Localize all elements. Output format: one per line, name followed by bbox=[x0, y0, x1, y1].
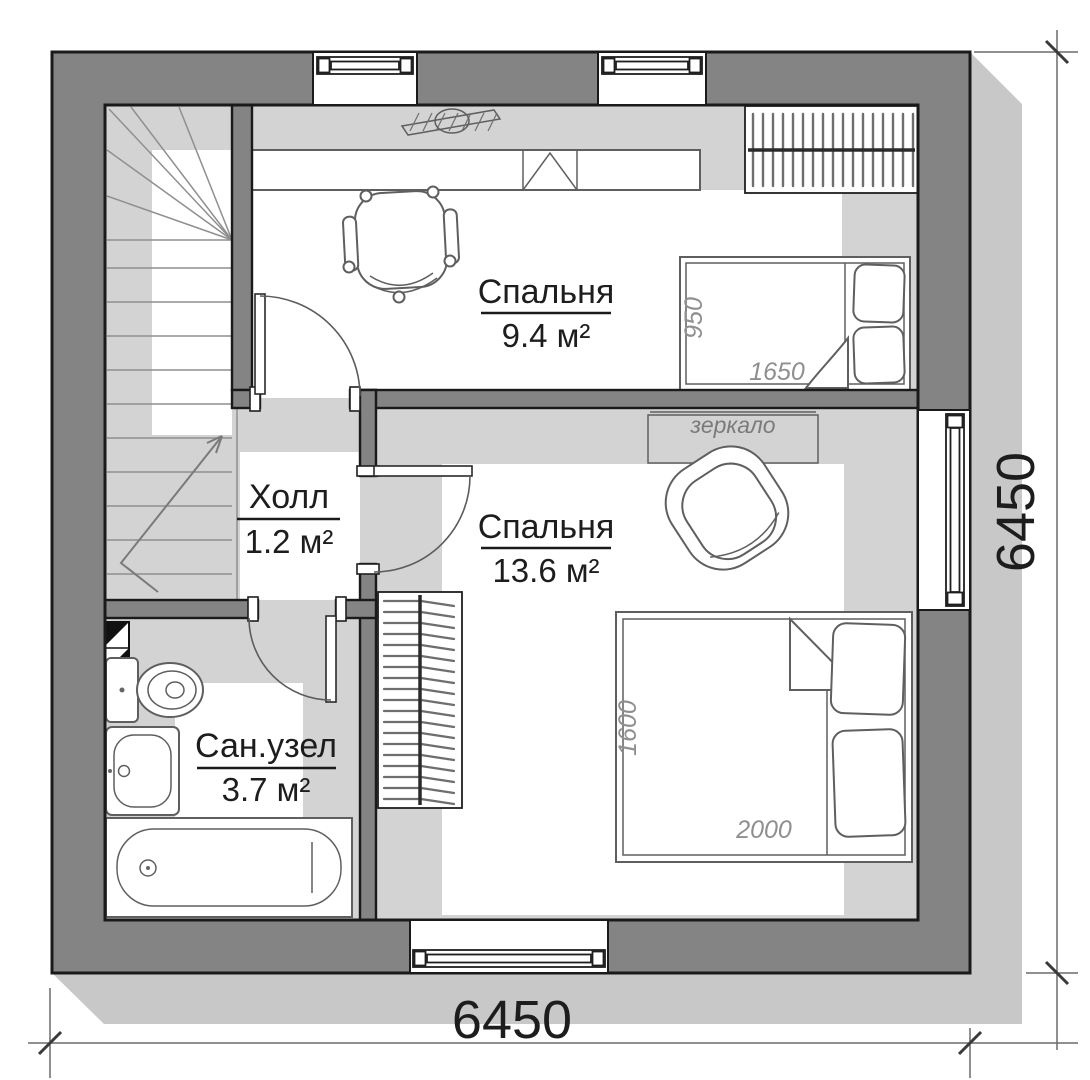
door-leaf bbox=[374, 466, 472, 476]
window-cap bbox=[319, 59, 330, 73]
room-name: Холл bbox=[249, 478, 329, 516]
window-cap bbox=[690, 59, 701, 73]
toilet bbox=[106, 658, 203, 722]
bathtub bbox=[106, 818, 352, 917]
bed-single-width: 950 bbox=[680, 297, 708, 339]
door-jamb bbox=[336, 597, 346, 621]
wall-hall-bedroom2 bbox=[360, 390, 376, 476]
window-cap bbox=[401, 59, 412, 73]
room-name: Спальня bbox=[478, 273, 615, 311]
room-name: Сан.узел bbox=[195, 727, 337, 765]
door-jamb bbox=[350, 387, 360, 411]
mirror-label: зеркало bbox=[689, 412, 775, 438]
window-top-right bbox=[598, 52, 706, 105]
bedroom-2-label: Спальня 13.6 м² bbox=[478, 508, 615, 589]
chair-caster bbox=[361, 191, 372, 202]
desk-top bbox=[252, 150, 700, 190]
floor-plan-page: Спальня 9.4 м² Спальня 13.6 м² Холл 1.2 … bbox=[0, 0, 1090, 1080]
chair-caster bbox=[445, 256, 456, 267]
chair-caster bbox=[428, 187, 439, 198]
wall-stairs-bedroom1 bbox=[232, 105, 252, 390]
window-top-left bbox=[313, 52, 417, 105]
sink-faucet bbox=[108, 769, 112, 773]
pillow bbox=[853, 326, 905, 384]
bed-single-length: 1650 bbox=[749, 358, 805, 386]
door-jamb bbox=[248, 597, 258, 621]
floor-white-stairs bbox=[152, 150, 232, 435]
room-area: 3.7 м² bbox=[222, 771, 311, 808]
window-glazing bbox=[951, 428, 960, 592]
toilet-button bbox=[120, 688, 125, 693]
wall-bathroom-north bbox=[105, 600, 258, 618]
room-name: Спальня bbox=[478, 508, 615, 546]
bed-double-length: 2000 bbox=[735, 816, 792, 844]
window-cap bbox=[948, 416, 963, 428]
window-cap bbox=[604, 59, 615, 73]
chair-caster bbox=[344, 262, 355, 273]
wall-bedroom1-bedroom2 bbox=[360, 390, 918, 408]
window-cap bbox=[415, 952, 426, 966]
floor-plan-drawing: Спальня 9.4 м² Спальня 13.6 м² Холл 1.2 … bbox=[0, 0, 1090, 1080]
hall-label: Холл 1.2 м² bbox=[237, 478, 340, 560]
room-area: 1.2 м² bbox=[245, 523, 334, 560]
window-cap bbox=[593, 952, 604, 966]
tub-drain-dot bbox=[146, 866, 150, 870]
pillow bbox=[830, 623, 905, 715]
room-area: 9.4 м² bbox=[502, 317, 591, 354]
window-cap bbox=[948, 593, 963, 605]
wardrobe-hangers-left bbox=[378, 592, 462, 808]
window-glazing bbox=[427, 955, 591, 963]
dimension-value-right: 6450 bbox=[986, 452, 1046, 572]
dimension-value-bottom: 6450 bbox=[452, 990, 572, 1050]
pillow bbox=[853, 264, 905, 323]
sink-counter bbox=[106, 727, 179, 815]
window-glazing bbox=[616, 62, 688, 70]
wardrobe-hangers-top bbox=[745, 106, 918, 193]
window-bottom bbox=[410, 920, 608, 973]
door-leaf bbox=[255, 294, 265, 394]
pillow bbox=[832, 729, 906, 837]
chair-seat bbox=[354, 190, 449, 291]
chair-caster bbox=[394, 292, 405, 303]
window-right bbox=[918, 410, 970, 610]
window-glazing bbox=[331, 62, 399, 70]
bed-double-width: 1600 bbox=[614, 700, 642, 756]
room-area: 13.6 м² bbox=[492, 552, 599, 589]
sink bbox=[106, 727, 179, 815]
tub-outline bbox=[106, 818, 352, 917]
door-leaf bbox=[326, 616, 336, 702]
